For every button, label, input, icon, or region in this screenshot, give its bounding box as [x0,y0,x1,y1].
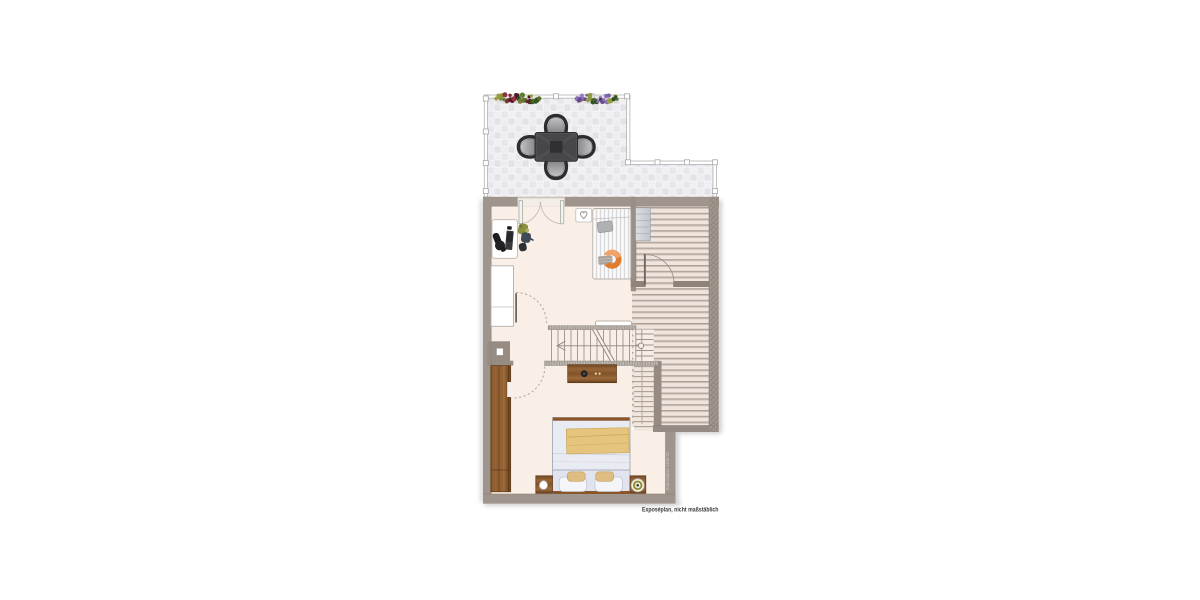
svg-text:Exposeplan 4100-22: Exposeplan 4100-22 [665,451,670,490]
svg-text:Exposéplan, nicht maßstäblich: Exposéplan, nicht maßstäblich [642,507,719,514]
